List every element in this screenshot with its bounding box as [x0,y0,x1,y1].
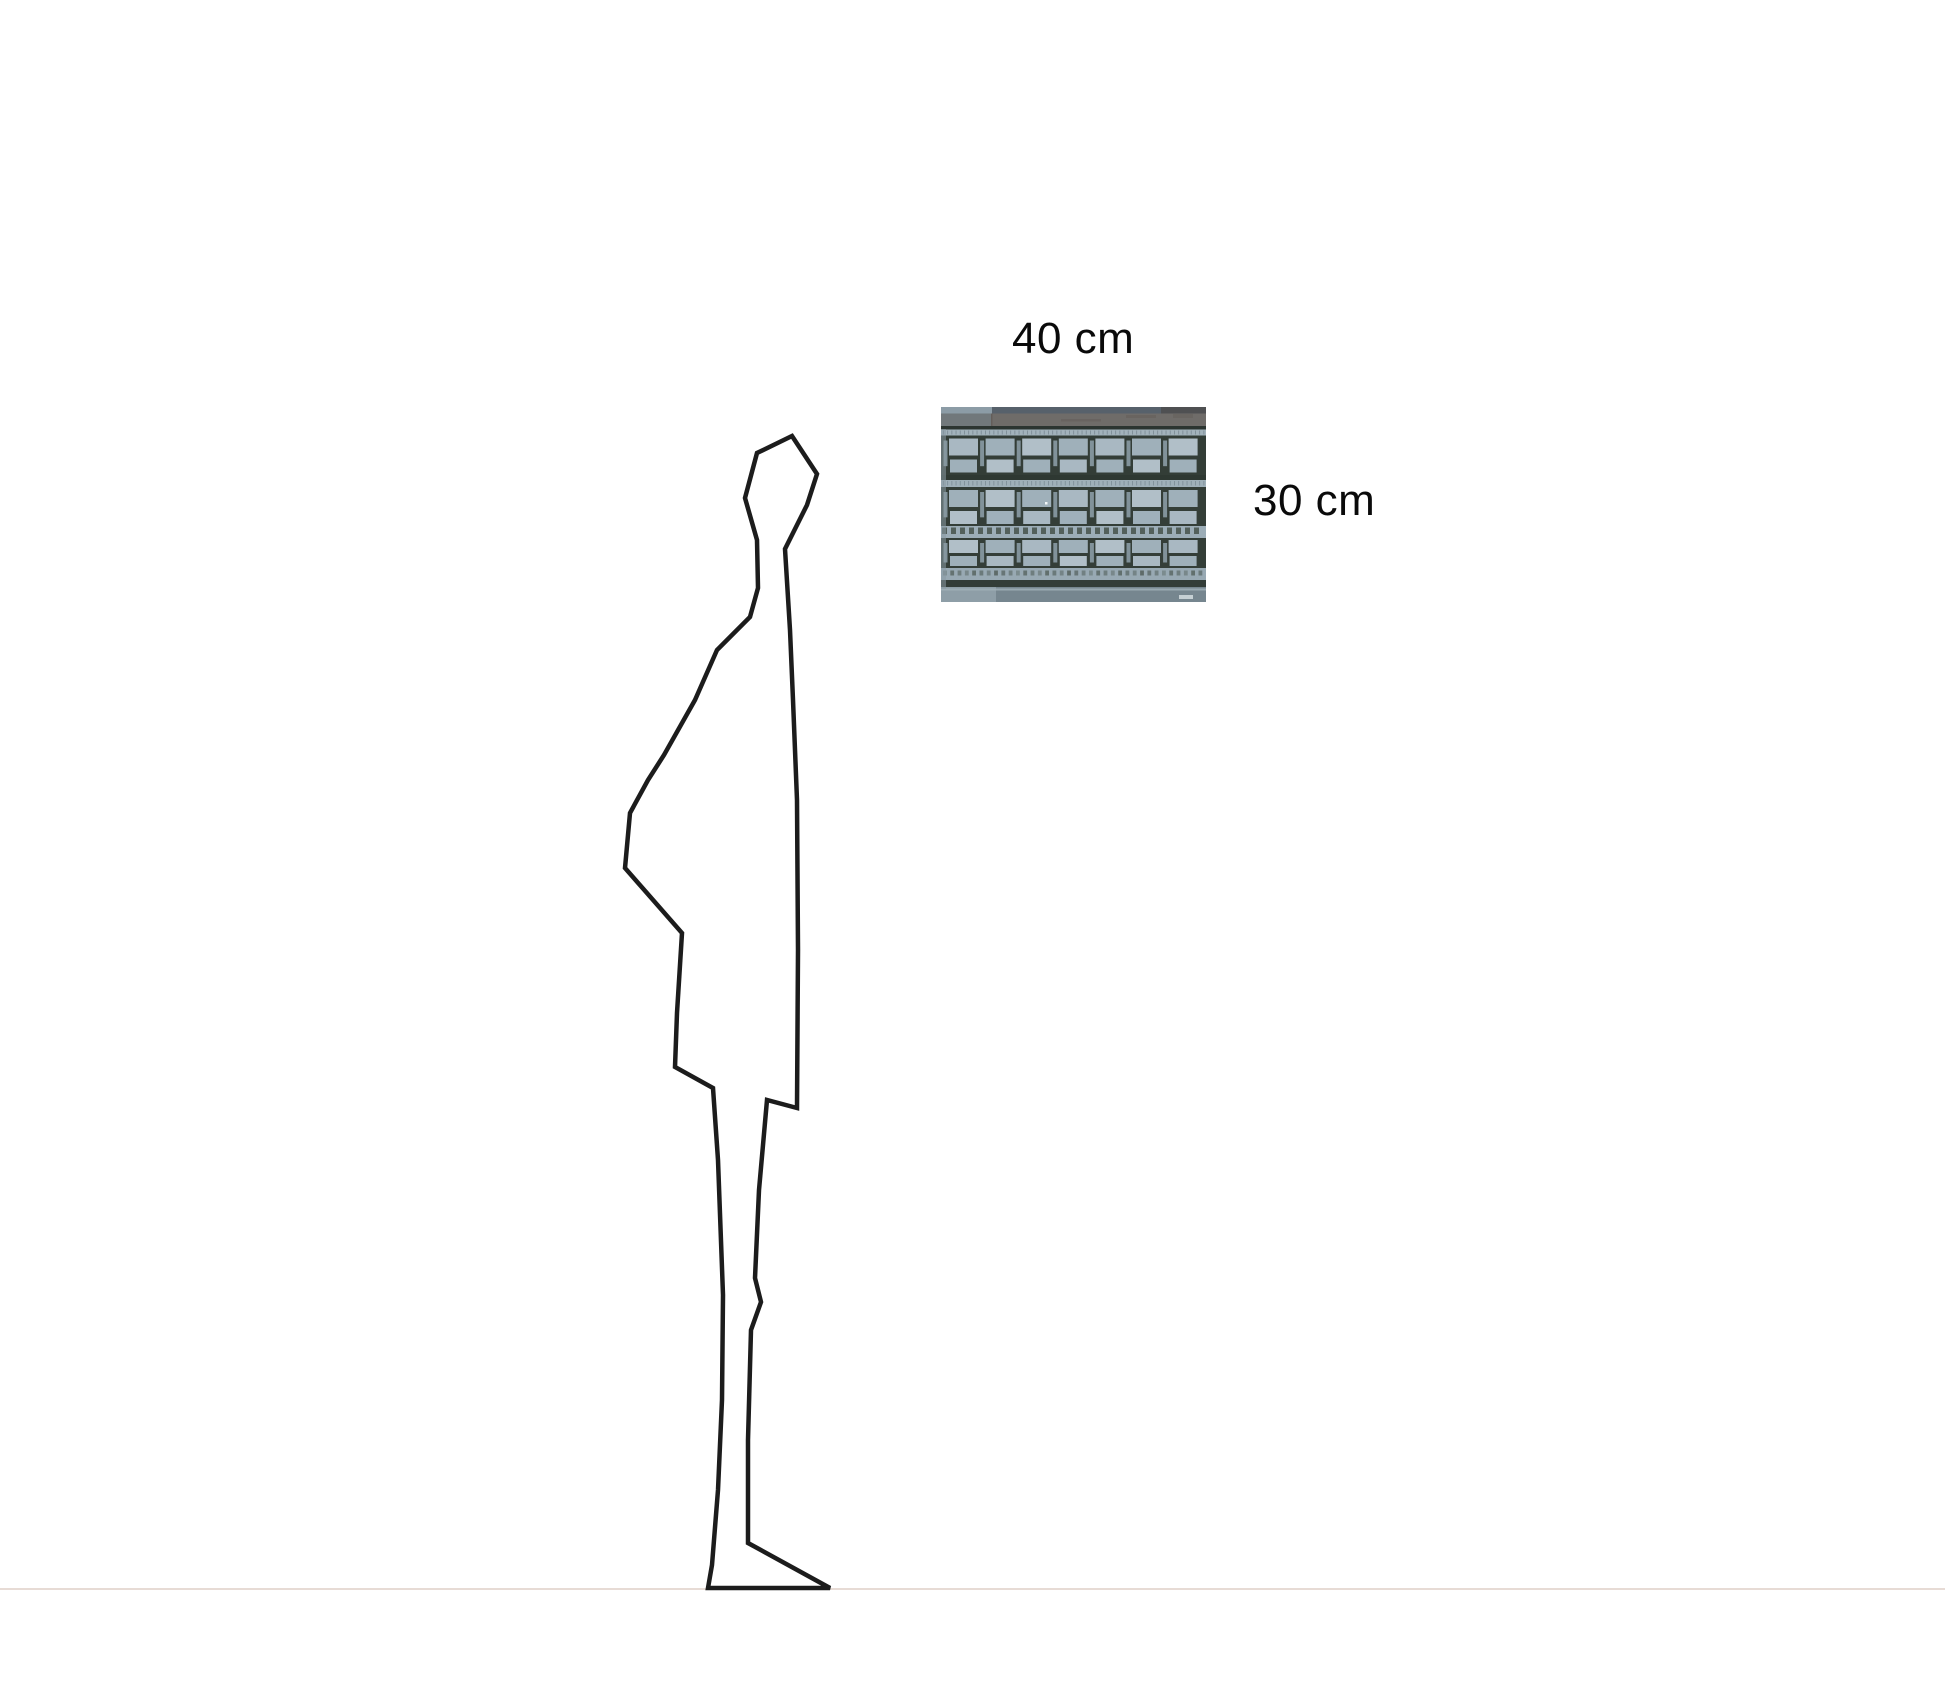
artwork-signature-mark [1179,595,1193,599]
artwork-width-label: 40 cm [1012,317,1134,361]
ground-line [0,1588,1945,1590]
artwork-thumbnail [941,407,1206,602]
human-silhouette-path [625,436,830,1588]
artwork-facade-image [941,407,1206,602]
human-figure-outline [0,0,1945,1700]
scale-preview-canvas: 40 cm 30 cm [0,0,1945,1700]
artwork-height-label: 30 cm [1253,479,1375,523]
